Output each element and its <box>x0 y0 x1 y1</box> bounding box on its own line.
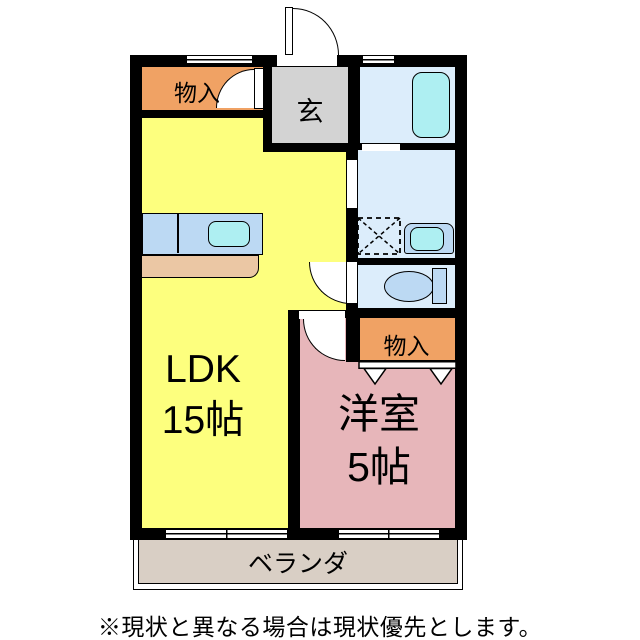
western-room-area: 5帖 <box>303 441 455 494</box>
window-western-veranda <box>338 529 440 539</box>
washing-machine-space-icon <box>356 216 402 256</box>
disclaimer-note: ※現状と異なる場合は現状優先とします。 <box>0 608 640 640</box>
ldk-name: LDK <box>138 344 268 395</box>
entrance-label: 玄 <box>272 90 348 129</box>
western-room-door-opening <box>299 311 345 319</box>
storage-top-door-leaf-icon <box>254 68 264 109</box>
storage-top-label: 物入 <box>142 74 252 108</box>
western-room-name: 洋室 <box>303 388 455 441</box>
washroom-door-icon <box>346 159 358 209</box>
kitchen-sink-icon <box>208 221 250 247</box>
veranda: ベランダ <box>138 539 458 584</box>
toilet-tank-icon <box>432 268 447 304</box>
entrance-opening <box>277 55 337 66</box>
ldk-label: LDK 15帖 <box>138 344 268 446</box>
western-room-label: 洋室 5帖 <box>303 388 455 494</box>
window-bathroom <box>362 55 395 64</box>
veranda-label: ベランダ <box>248 544 348 580</box>
floor-plan-page: ベランダ 物入 玄 物入 LDK 15帖 洋室 5帖 ※現状と異なる場合は現状優… <box>0 0 640 640</box>
bathroom-door-opening <box>362 144 400 151</box>
bathtub-icon <box>412 72 450 138</box>
room-ldk <box>142 118 263 152</box>
wash-basin-bowl-icon <box>410 227 444 251</box>
kitchen-counter-divider <box>177 214 179 253</box>
toilet-door-leaf-icon <box>346 261 358 304</box>
storage-bedroom-label: 物入 <box>358 327 455 361</box>
kitchen-lower-counter-icon <box>142 255 259 278</box>
window-ldk-veranda <box>165 529 288 539</box>
storage-folding-doors-icon <box>358 361 457 387</box>
window-top-left <box>186 55 253 64</box>
ldk-area: 15帖 <box>138 395 268 446</box>
entrance-door-leaf-icon <box>285 7 293 55</box>
toilet-bowl-icon <box>384 271 434 302</box>
entrance-door-swing-icon <box>293 8 339 55</box>
